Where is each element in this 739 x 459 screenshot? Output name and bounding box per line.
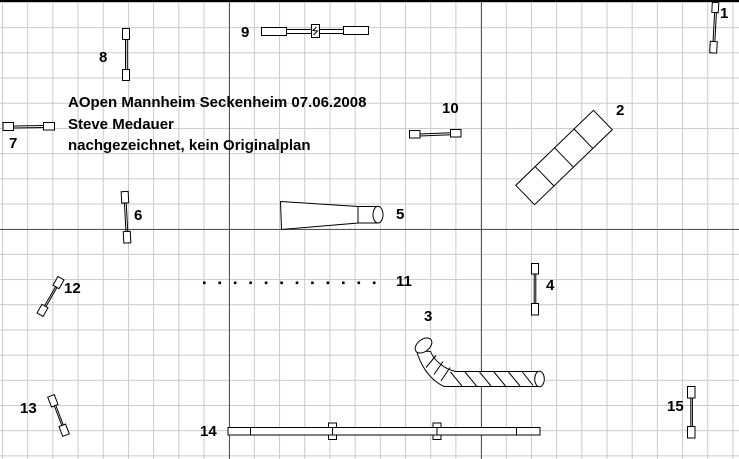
obstacle-13-hurdle bbox=[48, 395, 70, 437]
weave-pole bbox=[280, 282, 283, 285]
right-wing bbox=[344, 27, 369, 35]
joint-bracket bbox=[329, 423, 337, 428]
obstacle-number-3: 3 bbox=[424, 309, 432, 324]
obstacle-8-hurdle bbox=[123, 29, 130, 81]
obstacle-6-hurdle bbox=[121, 191, 131, 243]
chute-fabric bbox=[281, 202, 359, 230]
obstacle-number-5: 5 bbox=[396, 207, 404, 222]
obstacle-7-hurdle bbox=[3, 123, 55, 131]
obstacle-number-13: 13 bbox=[20, 401, 37, 416]
weave-pole bbox=[342, 282, 345, 285]
tunnel-opening-right bbox=[535, 371, 545, 387]
author-name: Steve Medauer bbox=[68, 114, 366, 136]
weave-pole bbox=[203, 282, 206, 285]
obstacle-number-8: 8 bbox=[99, 50, 107, 65]
obstacle-number-11: 11 bbox=[396, 274, 412, 289]
event-title: AOpen Mannheim Seckenheim 07.06.2008 bbox=[68, 92, 366, 114]
title-block: AOpen Mannheim Seckenheim 07.06.2008 Ste… bbox=[68, 92, 366, 157]
agility-course-plan: 1 2 3 4 5 6 7 8 9 10 11 12 13 14 15 AOpe… bbox=[0, 0, 739, 459]
chute-opening bbox=[373, 206, 383, 223]
course-drawing bbox=[0, 0, 739, 459]
joint-bracket bbox=[433, 423, 441, 428]
weave-pole bbox=[296, 282, 299, 285]
weave-pole bbox=[311, 282, 314, 285]
joint-bracket bbox=[329, 435, 337, 440]
obstacle-number-1: 1 bbox=[720, 6, 728, 21]
plank bbox=[228, 428, 540, 436]
obstacle-number-15: 15 bbox=[667, 399, 684, 414]
obstacle-number-10: 10 bbox=[442, 101, 459, 116]
plan-note: nachgezeichnet, kein Originalplan bbox=[68, 135, 366, 157]
obstacle-11-weave-poles bbox=[203, 282, 376, 285]
obstacle-number-9: 9 bbox=[241, 25, 249, 40]
obstacle-3-pipe-tunnel bbox=[412, 335, 544, 387]
obstacle-9-spread-jump bbox=[262, 25, 369, 38]
left-wing bbox=[262, 28, 287, 36]
obstacle-4-hurdle bbox=[532, 264, 539, 316]
weave-pole bbox=[249, 282, 252, 285]
weave-pole bbox=[373, 282, 376, 285]
obstacle-number-2: 2 bbox=[616, 103, 624, 118]
weave-pole bbox=[234, 282, 237, 285]
weave-pole bbox=[327, 282, 330, 285]
obstacle-14-dog-walk bbox=[228, 423, 540, 440]
obstacle-2-wall bbox=[516, 110, 612, 204]
obstacle-number-12: 12 bbox=[64, 281, 81, 296]
obstacle-number-7: 7 bbox=[9, 136, 17, 151]
obstacle-number-4: 4 bbox=[546, 278, 554, 293]
obstacle-1-hurdle bbox=[710, 2, 720, 53]
obstacle-number-14: 14 bbox=[200, 424, 217, 439]
weave-pole bbox=[358, 282, 361, 285]
obstacle-number-6: 6 bbox=[134, 208, 142, 223]
obstacle-5-collapsed-tunnel bbox=[281, 202, 384, 230]
joint-bracket bbox=[433, 435, 441, 440]
obstacle-10-hurdle bbox=[410, 130, 462, 139]
obstacle-15-hurdle bbox=[688, 387, 696, 439]
weave-pole bbox=[218, 282, 221, 285]
weave-pole bbox=[265, 282, 268, 285]
obstacle-12-hurdle bbox=[37, 277, 64, 317]
